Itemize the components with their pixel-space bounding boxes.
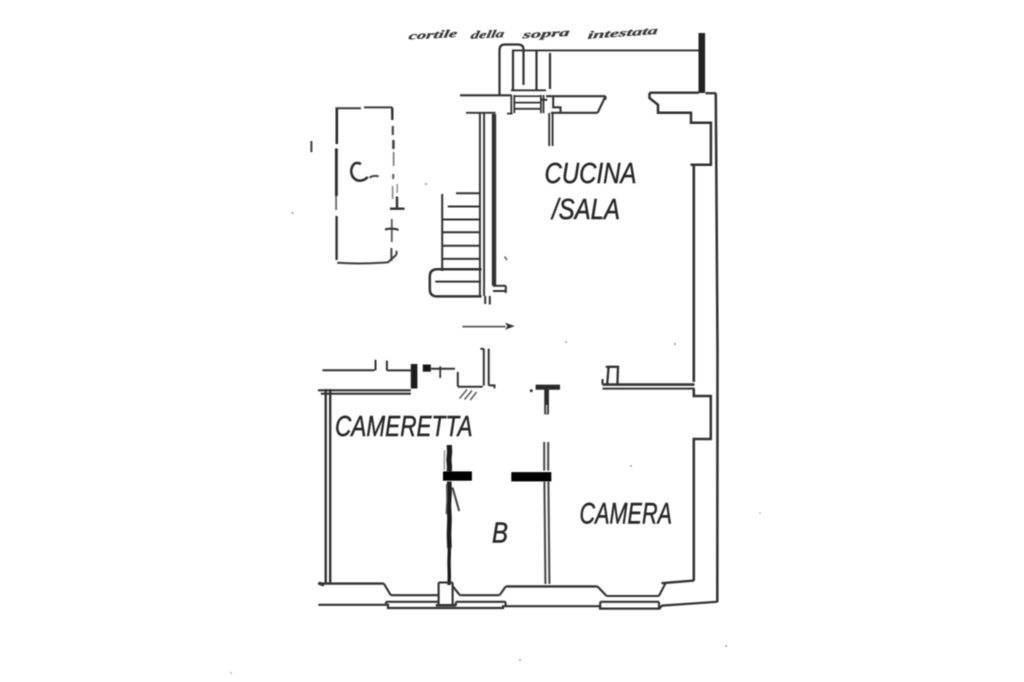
svg-text:CAMERA: CAMERA	[580, 498, 673, 531]
svg-text:B: B	[492, 517, 508, 549]
svg-text:cortile: cortile	[408, 28, 459, 42]
svg-text:CAMERETTA: CAMERETTA	[335, 411, 473, 443]
svg-text:intestata: intestata	[587, 25, 660, 42]
svg-text:della: della	[470, 28, 506, 42]
svg-text:sopra: sopra	[520, 27, 571, 41]
svg-text:CUCINA: CUCINA	[545, 158, 637, 190]
svg-text:/SALA: /SALA	[550, 194, 620, 226]
